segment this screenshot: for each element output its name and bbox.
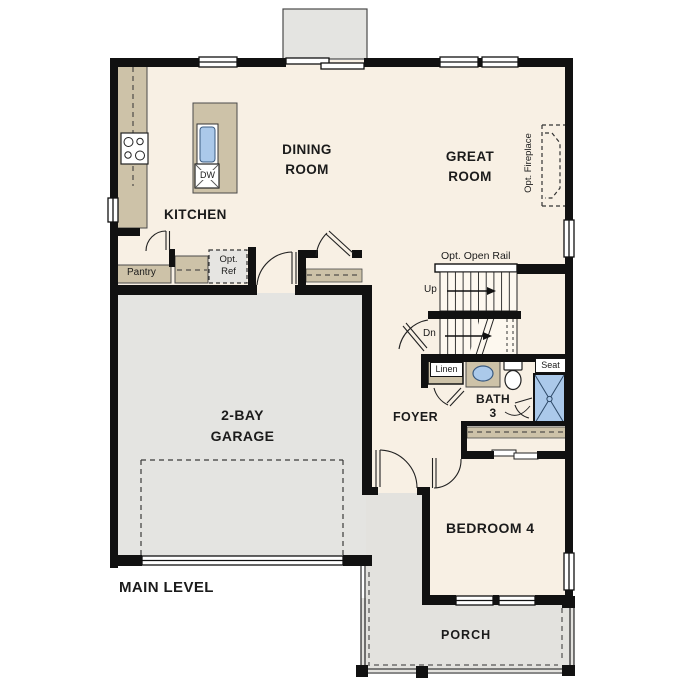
open-rail-label: Opt. Open Rail (441, 250, 510, 262)
linen-label: Linen (430, 362, 463, 377)
toilet-bowl (505, 371, 521, 390)
closet-slider-right (514, 453, 538, 459)
stairs-up-label: Up (424, 284, 437, 295)
porch-post (356, 665, 368, 677)
porch-post (562, 596, 575, 608)
room-label-bedroom4: BEDROOM 4 (446, 518, 534, 539)
open-rail (435, 264, 517, 272)
optional-fireplace-label: Opt. Fireplace (523, 123, 535, 203)
optional-ref-label: Opt. Ref (211, 254, 246, 279)
room-label-garage: 2-BAY GARAGE (195, 405, 290, 447)
porch-post (416, 666, 428, 678)
room-label-foyer: FOYER (393, 408, 438, 427)
shower-drain (547, 396, 552, 401)
room-label-kitchen: KITCHEN (164, 205, 227, 225)
porch-post (562, 665, 575, 676)
cooktop (121, 133, 148, 164)
floor-plan-drawing (0, 0, 687, 687)
bump-out-pad (283, 9, 367, 59)
room-label-porch: PORCH (441, 626, 491, 645)
dishwasher-label: DW (199, 170, 216, 180)
counter-end-cap (117, 228, 140, 236)
porch-walkway (366, 493, 422, 600)
room-label-bath: BATH 3 (470, 392, 516, 421)
staircase (435, 264, 517, 355)
seat-label: Seat (535, 358, 566, 373)
floor-plan: DINING ROOM GREAT ROOM KITCHEN 2-BAY GAR… (0, 0, 687, 687)
bath-sink (473, 366, 493, 381)
room-label-great-room: GREAT ROOM (425, 147, 515, 188)
level-label: MAIN LEVEL (119, 577, 214, 600)
stairs-down-label: Dn (423, 328, 436, 339)
slider-panel-2 (321, 63, 364, 69)
pantry-label: Pantry (127, 267, 156, 278)
closet-slider-left (492, 450, 516, 456)
kitchen-sink (200, 127, 215, 162)
room-label-dining: DINING ROOM (262, 140, 352, 181)
